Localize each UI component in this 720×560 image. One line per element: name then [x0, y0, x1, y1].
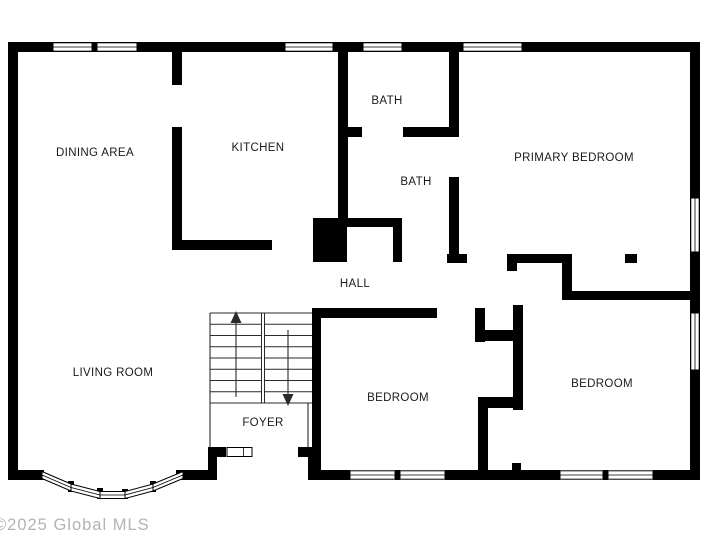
front-door — [227, 448, 252, 457]
window-mullion — [603, 470, 608, 480]
room-label-bath-lower: BATH — [400, 176, 431, 188]
room-label-dining-area: DINING AREA — [56, 147, 134, 159]
room-label-kitchen: KITCHEN — [232, 142, 285, 154]
window-mullion — [395, 470, 400, 480]
room-label-bedroom-right: BEDROOM — [571, 378, 633, 390]
room-label-primary-bedroom: PRIMARY BEDROOM — [514, 152, 634, 164]
room-label-living-room: LIVING ROOM — [73, 367, 154, 379]
room-label-bath-upper: BATH — [371, 95, 402, 107]
room-label-bedroom-middle: BEDROOM — [367, 392, 429, 404]
window-mullion — [92, 42, 97, 52]
floor-plan-drawing: DINING AREA KITCHEN BATH BATH PRIMARY BE… — [0, 0, 720, 560]
watermark-text: ©2025 Global MLS — [0, 516, 150, 534]
floor-plan-page: DINING AREA KITCHEN BATH BATH PRIMARY BE… — [0, 0, 720, 560]
room-label-foyer: FOYER — [242, 417, 283, 429]
room-label-hall: HALL — [340, 278, 370, 290]
